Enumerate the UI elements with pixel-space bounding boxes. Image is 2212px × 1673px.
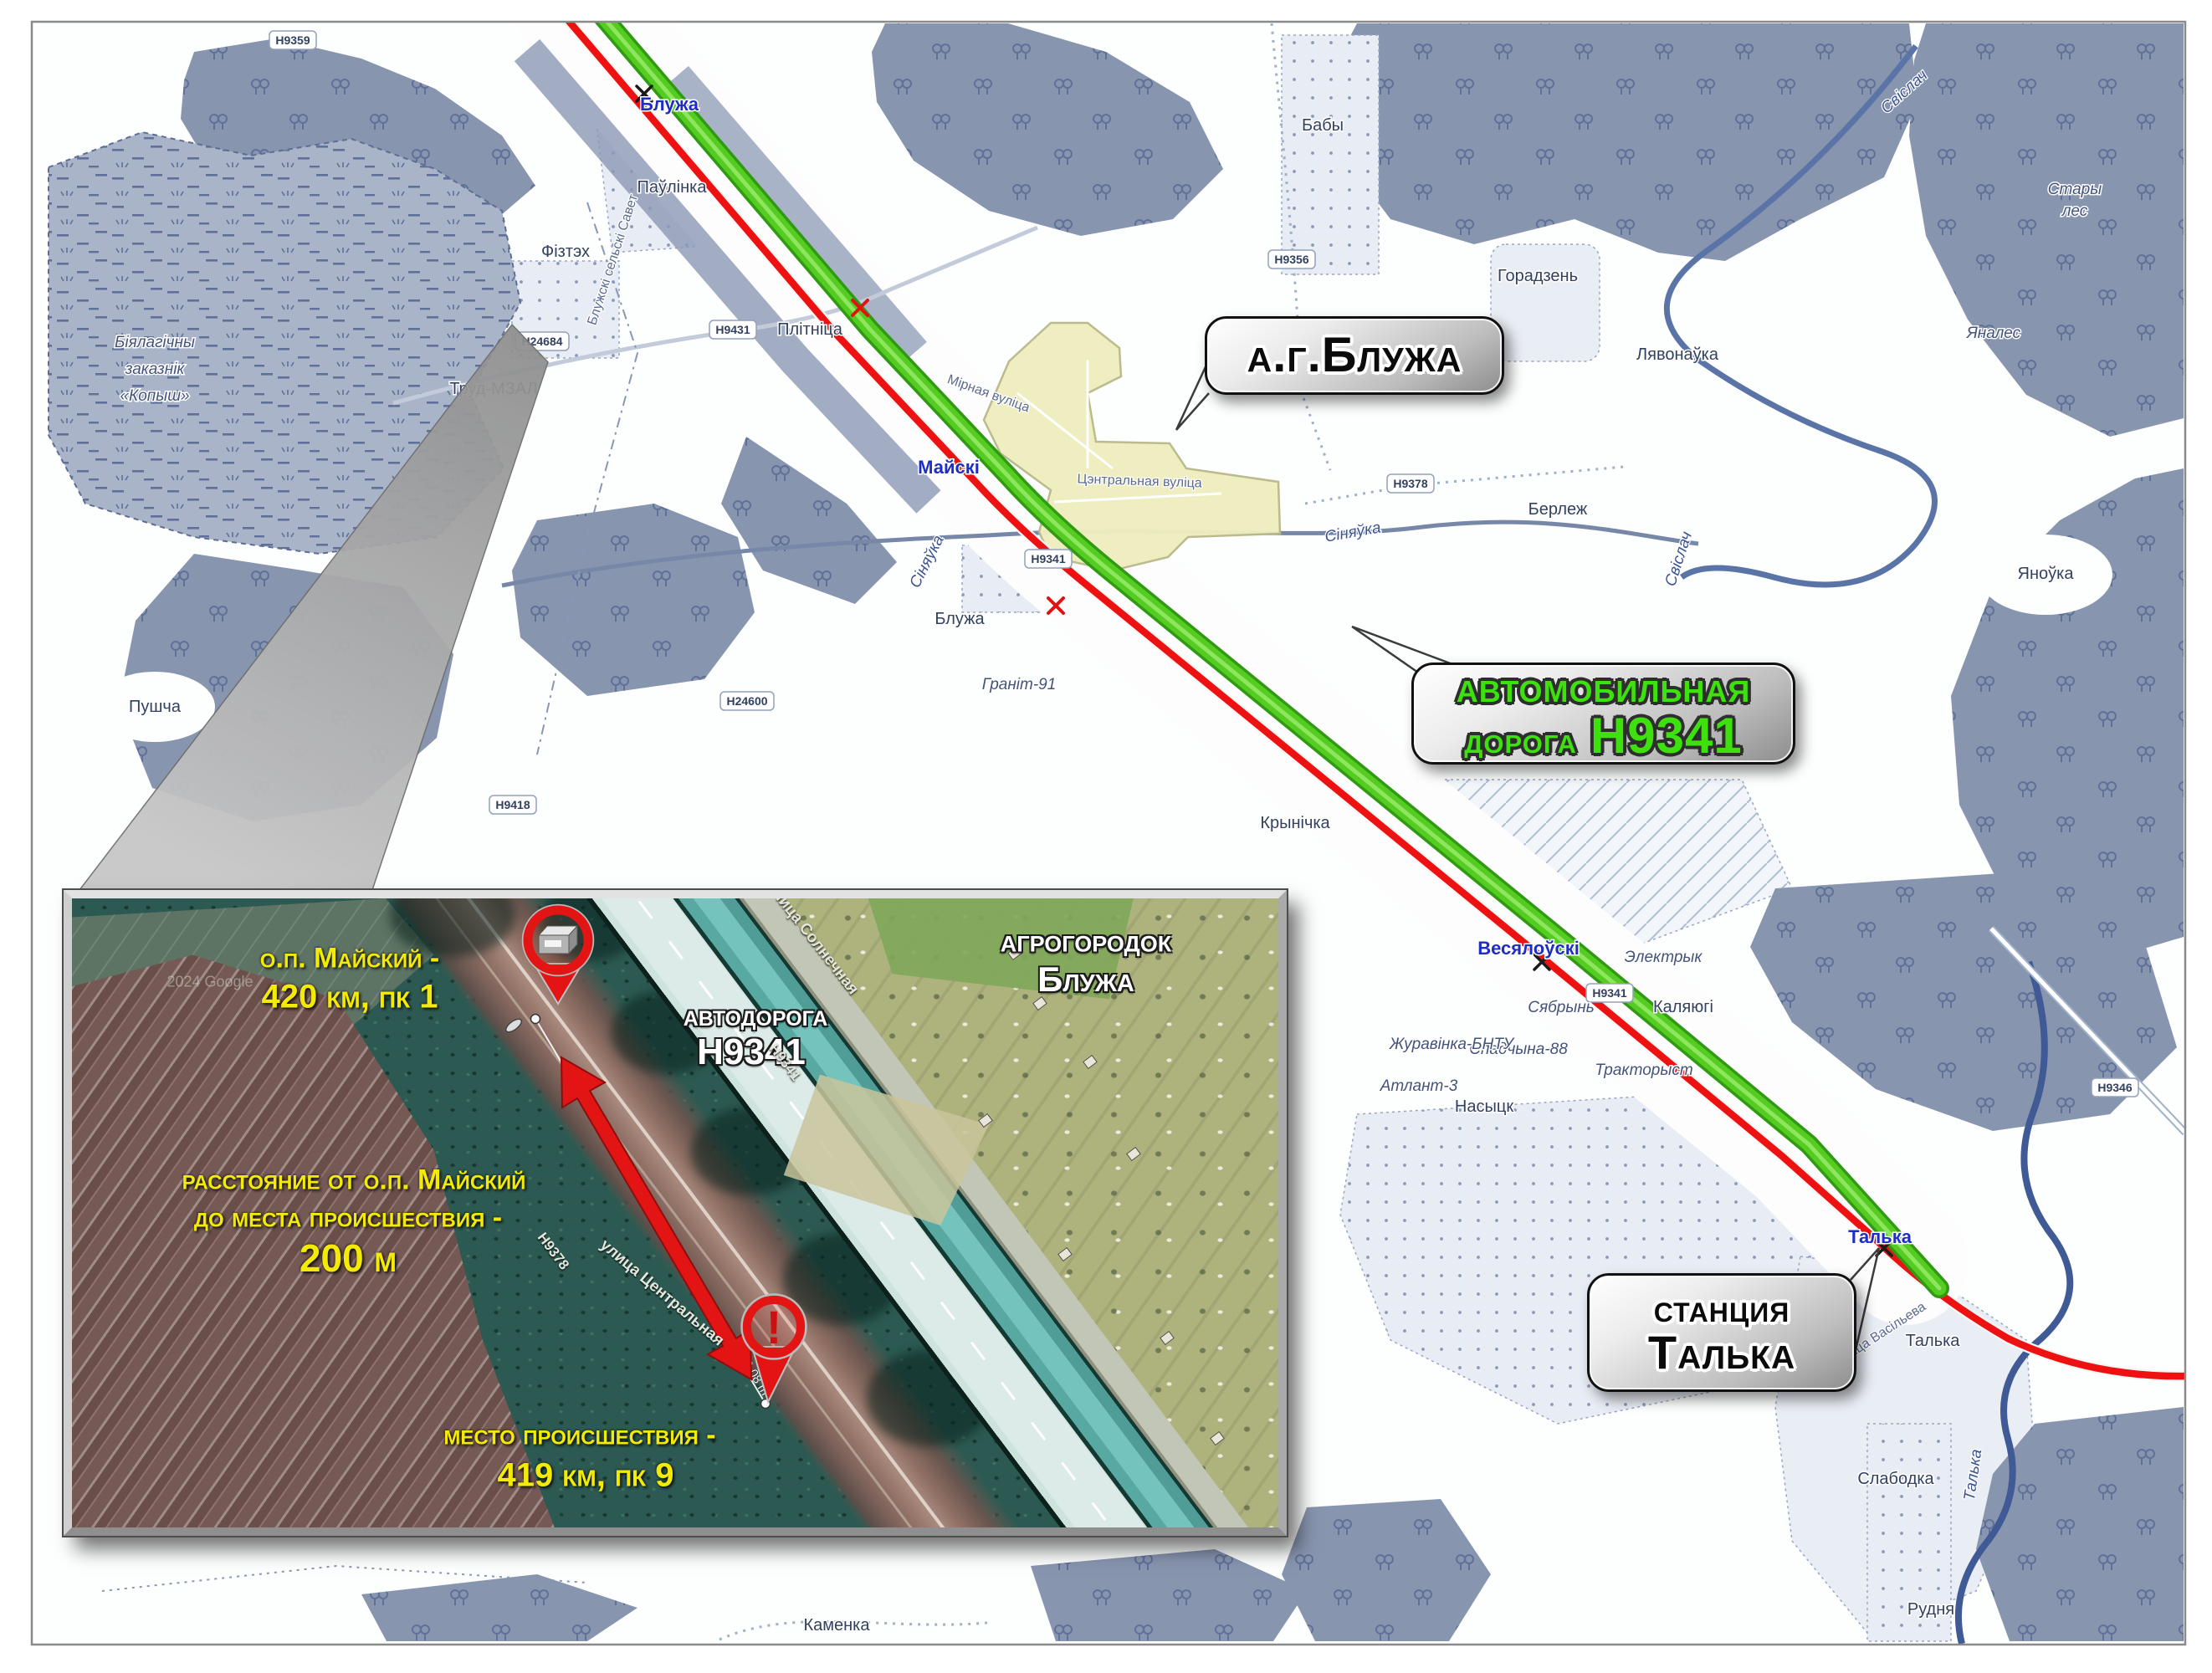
callout-station-talka: станция Талька [1587,1273,1856,1392]
incident-pin-icon: ! [742,1295,806,1403]
inset-op-mayski-line2: 420 км, пк 1 [261,979,438,1016]
road-badge: Н9346 [2097,1081,2132,1094]
place-label: Фізтэх [541,243,590,261]
inset-incident-line1: место происшествия - [443,1420,715,1452]
road-badge: Н9378 [1393,477,1427,490]
place-label: Крынічка [1260,814,1330,832]
place-label: Плітніца [777,320,843,339]
place-label: Насыцк [1455,1097,1513,1116]
place-label: Блужа [934,610,985,628]
inset-road-label-line1: автодорога [684,998,828,1033]
station-label: Талька [1848,1226,1912,1247]
place-label: Горадзень [1498,267,1578,285]
place-label: Талька [1906,1332,1961,1350]
callout-settlement-bluzha: а.г.Блужа [1205,316,1504,395]
callout-road-line1: автомобильная [1457,666,1750,710]
map-page: Н9359 Н24684 Н9431 Н9356 Н9378 Н24600 Н9… [0,0,2212,1673]
place-label: Пушча [129,698,182,716]
callout-settlement-text: а.г.Блужа [1247,330,1462,380]
road-badge: Н9341 [1031,552,1065,565]
place-label: Рудня [1907,1600,1954,1619]
place-label: Журавінка-БНТУ [1389,1036,1515,1053]
callout-road-h9341: автомобильная дорога Н9341 [1411,663,1795,765]
inset-op-mayski-line1: о.п. Майский - [260,943,439,975]
place-label: Граніт-91 [982,676,1057,693]
place-label: Берлеж [1528,500,1588,519]
road-badge: Н9431 [715,323,750,336]
platform-shape [504,1016,524,1034]
station-label: Майскі [918,457,980,478]
place-label: Сябрынь [1528,999,1595,1016]
place-label: Каляюгі [1653,998,1713,1016]
station-label: Блужа [640,94,699,115]
place-label: Каменка [803,1616,870,1635]
place-label: Паўлінка [637,178,708,197]
inset-distance-line3: 200 м [300,1236,397,1281]
reserve-label: заказнік [125,361,186,378]
place-label: Слабодка [1857,1470,1934,1488]
callout-road-line2-number: Н9341 [1590,710,1743,761]
satellite-inset: 9,08 m ! о.п. Майский - 420 км, пк 1 рас… [64,890,1287,1536]
inset-incident-line2: 419 км, пк 9 [497,1457,673,1495]
distance-arrow [561,1057,751,1379]
place-label: Атлант-3 [1380,1077,1458,1095]
inset-agro-label-line2: Блужа [1037,959,1134,1000]
place-label: Яноўка [2018,565,2075,583]
inset-watermark: 2024 Google [166,974,253,991]
road-badge: Н9356 [1274,253,1308,266]
reserve-label: «Копыш» [120,387,189,405]
place-label: Бабы [1302,116,1344,135]
place-label: Тракторыст [1595,1062,1692,1079]
inset-distance-line1: расстояние от о.п. Майский [182,1164,526,1197]
station-label: Весялоўскі [1477,938,1580,959]
callout-station-line2: Талька [1648,1328,1795,1376]
reserve-label: Біялагічны [115,334,195,351]
road-badge: Н24600 [726,694,767,708]
place-label: лес [2061,202,2088,220]
place-label: Лявонаўка [1636,345,1719,364]
callout-road-line2-word: дорога [1464,723,1577,760]
exclamation-glyph: ! [766,1301,782,1353]
callout-station-line1: станция [1654,1289,1790,1328]
place-label: Электрык [1625,949,1703,966]
place-label: Яналес [1966,325,2021,342]
road-badge: Н9359 [275,33,310,47]
road-badge: Н9341 [1592,986,1626,1000]
measure-start-point [531,1015,540,1024]
clearing [1282,35,1379,274]
place-label: Стары [2048,181,2102,198]
inset-distance-line2: до места происшествия - [194,1202,502,1235]
platform-pin-icon [523,905,593,1004]
inset-agro-label-line1: агрогородок [1001,924,1171,960]
road-badge: Н9418 [495,798,530,811]
